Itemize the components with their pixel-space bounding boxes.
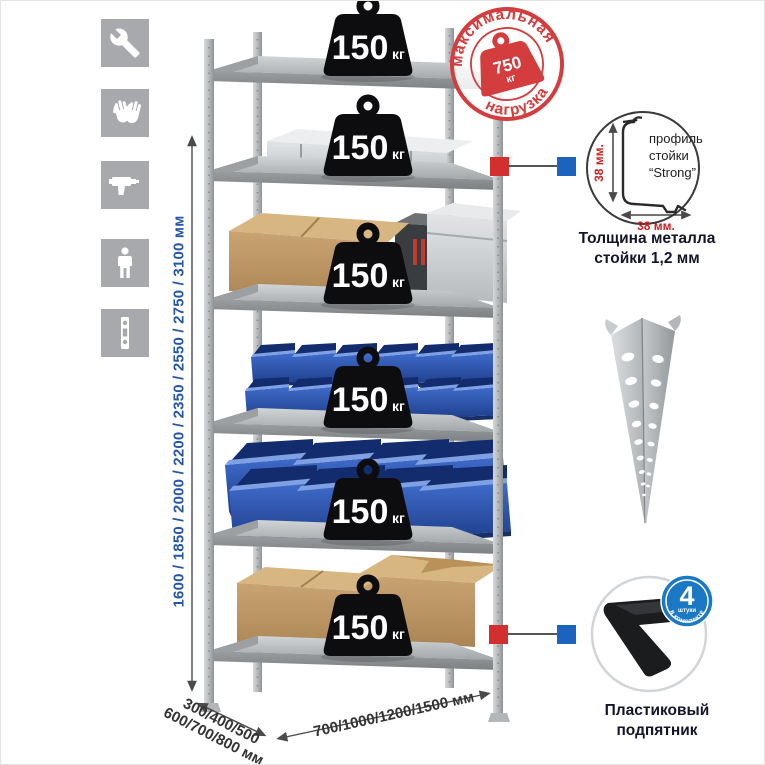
shelf-load-value: 150 [332, 29, 389, 67]
shelf-load-value: 150 [332, 493, 389, 531]
shelf-load-value: 150 [332, 129, 389, 167]
shelf-load-unit: кг [392, 274, 405, 290]
shelf-load-unit: кг [392, 510, 405, 526]
callout-connector-bottom [489, 625, 576, 644]
profile-detail-circle: 38 мм. 38 мм. профиль стойки “Strong” [587, 112, 703, 233]
foot-caption-line2: подпятник [579, 721, 735, 741]
max-load-stamp: максимальная нагрузка 750 кг [437, 1, 576, 132]
rack-illustration: 150кг 150кг 150кг 150кг 150кг 150кг макс… [1, 1, 765, 765]
profile-caption: Толщина металла стойки 1,2 мм [569, 229, 725, 270]
callout-connector-top [490, 157, 576, 176]
shelf-load-value: 150 [332, 257, 389, 295]
shelving-product-infographic: 1600 / 1850 / 2000 / 2200 / 2350 / 2550 … [0, 0, 765, 765]
profile-caption-line2: стойки 1,2 мм [569, 249, 725, 269]
foot-detail-circle: 4 штуки в комплекте [592, 575, 713, 691]
red-marker-square [490, 157, 509, 176]
blue-marker-square [557, 625, 576, 644]
shelf-load-unit: кг [392, 398, 405, 414]
shelf-load-unit: кг [392, 46, 405, 62]
quantity-badge: 4 штуки в комплекте [661, 575, 713, 627]
profile-title-line1: профиль [649, 131, 703, 146]
badge-quantity-sub: штуки [678, 608, 696, 614]
profile-caption-line1: Толщина металла [569, 229, 725, 249]
shelf-load-unit: кг [392, 626, 405, 642]
shelf-load-value: 150 [332, 381, 389, 419]
shelf-load-value: 150 [332, 609, 389, 647]
profile-title-line2: стойки [649, 148, 689, 163]
foot-caption: Пластиковый подпятник [579, 701, 735, 742]
blue-marker-square [557, 157, 576, 176]
foot-caption-line1: Пластиковый [579, 701, 735, 721]
red-marker-square [489, 625, 508, 644]
badge-quantity-value: 4 [679, 581, 694, 611]
shelf-load-unit: кг [392, 146, 405, 162]
corner-post-image [605, 315, 681, 525]
profile-title-line3: “Strong” [649, 165, 696, 180]
profile-vertical-dimension: 38 мм. [592, 144, 606, 182]
